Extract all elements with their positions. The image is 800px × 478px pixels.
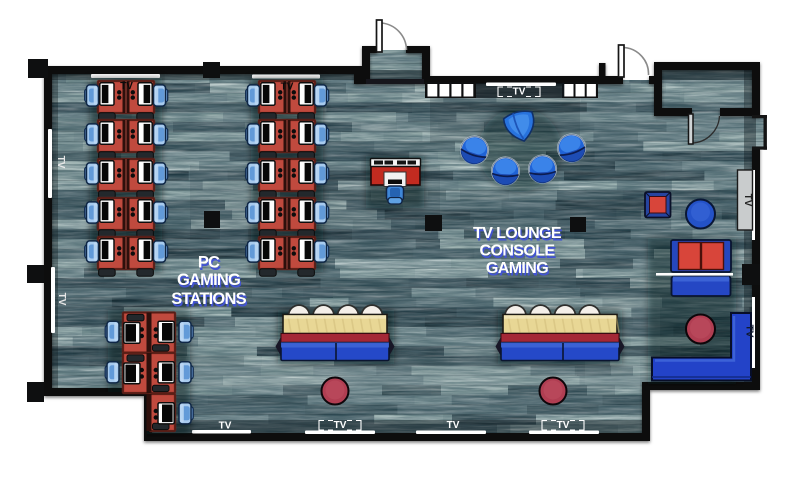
svg-text:TV: TV bbox=[557, 420, 570, 431]
svg-text:TV: TV bbox=[120, 81, 133, 92]
svg-text:PC: PC bbox=[198, 254, 220, 272]
svg-text:TV: TV bbox=[281, 82, 294, 93]
svg-text:GAMING: GAMING bbox=[486, 260, 548, 277]
svg-text:TV: TV bbox=[513, 87, 526, 98]
svg-text:TV LOUNGE: TV LOUNGE bbox=[473, 225, 562, 242]
svg-text:TV: TV bbox=[55, 156, 66, 169]
svg-text:TV: TV bbox=[744, 325, 755, 338]
svg-text:TV: TV bbox=[56, 293, 67, 306]
svg-text:GAMING: GAMING bbox=[177, 271, 240, 289]
svg-text:TV: TV bbox=[334, 420, 347, 431]
svg-text:TV: TV bbox=[447, 420, 460, 431]
svg-text:TV: TV bbox=[742, 194, 753, 207]
svg-text:STATIONS: STATIONS bbox=[171, 290, 246, 308]
svg-text:CONSOLE: CONSOLE bbox=[480, 243, 556, 260]
svg-text:TV: TV bbox=[219, 421, 232, 432]
